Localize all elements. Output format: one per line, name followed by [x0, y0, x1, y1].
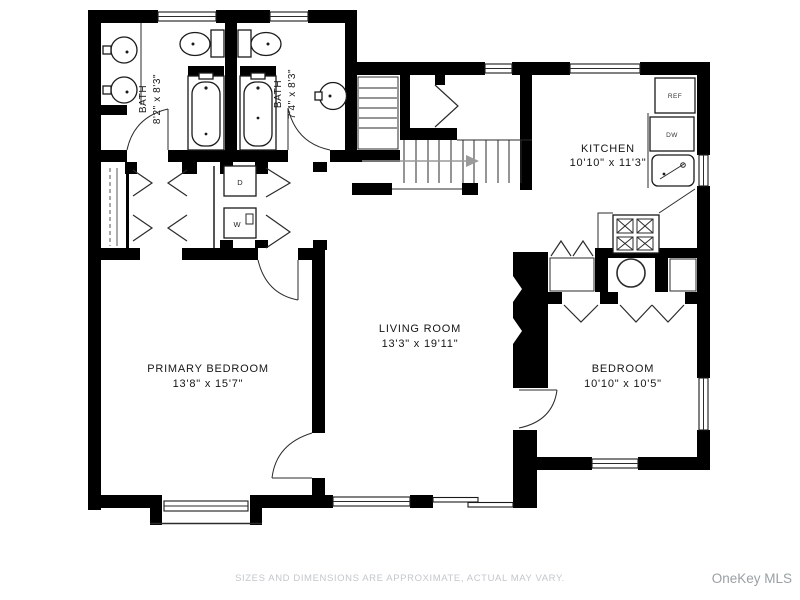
fireplace-chimney — [513, 252, 548, 388]
washer-label: W — [233, 220, 241, 229]
window — [699, 155, 708, 186]
room-label-bedroom-dims: 10'10" x 10'5" — [584, 378, 662, 390]
room-label-living-room-dims: 13'3" x 19'11" — [382, 338, 459, 350]
window — [158, 12, 216, 21]
window — [333, 497, 410, 506]
window — [570, 64, 640, 73]
refrigerator-label: REF — [668, 93, 682, 100]
room-label-bath-1-dims: 8'2" x 8'3" — [152, 74, 163, 124]
door-entry-closet — [435, 85, 458, 127]
bathtub — [188, 73, 224, 150]
sink-vanity — [103, 23, 141, 105]
laundry-closet: D W — [214, 166, 256, 248]
room-label-bath-2-dims: 7'4" x 8'3" — [287, 69, 298, 119]
room-label-bath-1-name: BATH — [138, 85, 149, 113]
bedroom-bifold-closets — [564, 305, 684, 322]
wardrobe-closet — [110, 162, 129, 248]
room-label-primary-bedroom-name: PRIMARY BEDROOM — [147, 363, 269, 375]
bathtub — [240, 73, 276, 150]
room-label-bedroom-name: BEDROOM — [592, 363, 654, 375]
door-bedroom — [519, 390, 557, 428]
dryer-label: D — [237, 178, 243, 187]
watermark-text: OneKey MLS — [712, 571, 792, 586]
room-label-living-room-name: LIVING ROOM — [379, 323, 461, 335]
stove — [613, 215, 659, 253]
room-label-bath-2-name: BATH — [273, 80, 284, 108]
door-primary-bedroom — [258, 260, 298, 300]
window — [485, 64, 512, 73]
kitchen-sink — [652, 155, 694, 186]
window — [699, 378, 708, 430]
floor-plan-drawing: REF DW D W — [0, 0, 800, 600]
toilet — [180, 30, 224, 57]
bay-window — [150, 495, 262, 525]
bifold-closet-doors — [133, 168, 290, 248]
toilet — [238, 30, 281, 57]
room-label-kitchen-name: KITCHEN — [581, 143, 635, 155]
disclaimer-text: SIZES AND DIMENSIONS ARE APPROXIMATE, AC… — [235, 573, 565, 584]
window — [270, 12, 308, 21]
window — [592, 459, 638, 468]
room-label-primary-bedroom-dims: 13'8" x 15'7" — [173, 378, 244, 390]
sink-round — [315, 83, 347, 110]
room-label-kitchen-dims: 10'10" x 11'3" — [570, 157, 647, 169]
utility-tank — [617, 259, 645, 287]
door-primary-bedroom-2 — [272, 433, 312, 478]
staircase — [362, 140, 532, 189]
dishwasher-label: DW — [666, 132, 678, 139]
linen-closet — [358, 77, 398, 149]
floor-plan-page: REF DW D W — [0, 0, 800, 600]
